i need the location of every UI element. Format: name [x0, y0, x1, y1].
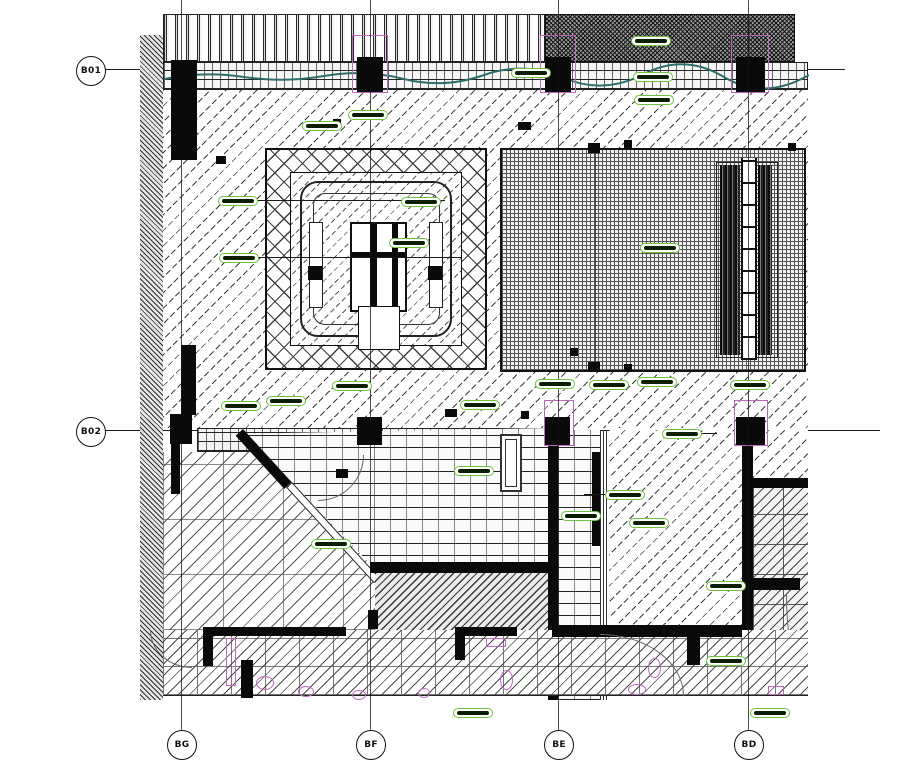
grid-bubble: B01 [76, 56, 106, 86]
grid-bubble-label: B01 [81, 66, 101, 76]
grid-bubble-label: BF [364, 740, 378, 750]
drawing-canvas: B01B02BGBFBEBD [0, 0, 920, 763]
grid-bubble: B02 [76, 417, 106, 447]
grid-bubble-label: B02 [81, 427, 101, 437]
grid-bubble: BD [734, 730, 764, 760]
grid-bubble: BF [356, 730, 386, 760]
grid-bubbles-layer: B01B02BGBFBEBD [0, 0, 920, 763]
grid-bubble-label: BG [175, 740, 190, 750]
grid-bubble: BG [167, 730, 197, 760]
grid-bubble: BE [544, 730, 574, 760]
grid-bubble-label: BE [552, 740, 566, 750]
grid-bubble-label: BD [742, 740, 757, 750]
